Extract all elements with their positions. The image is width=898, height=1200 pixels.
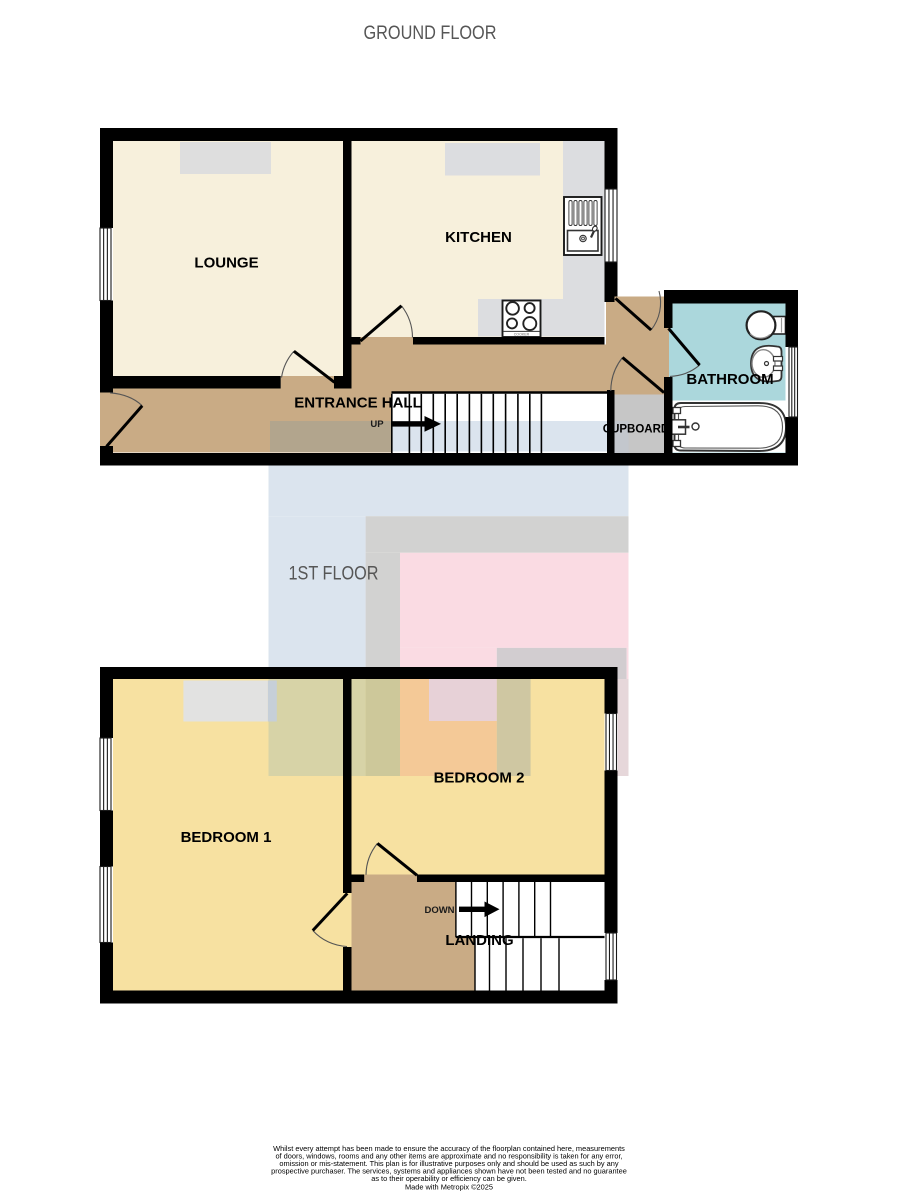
svg-text:BEDROOM 2: BEDROOM 2 xyxy=(434,770,525,787)
svg-text:1ST FLOOR: 1ST FLOOR xyxy=(289,564,379,585)
svg-text:GROUND FLOOR: GROUND FLOOR xyxy=(364,23,497,44)
svg-text:BATHROOM: BATHROOM xyxy=(686,371,773,388)
svg-text:UP: UP xyxy=(370,419,384,430)
svg-text:LOUNGE: LOUNGE xyxy=(194,255,258,272)
svg-text:BEDROOM 1: BEDROOM 1 xyxy=(181,829,272,846)
svg-text:COOKER: COOKER xyxy=(514,333,530,337)
svg-text:ENTRANCE HALL: ENTRANCE HALL xyxy=(294,395,422,412)
svg-text:LANDING: LANDING xyxy=(445,932,513,949)
svg-text:Made with Metropix ©2025: Made with Metropix ©2025 xyxy=(405,1183,493,1192)
svg-text:KITCHEN: KITCHEN xyxy=(445,229,512,246)
svg-text:DOWN: DOWN xyxy=(424,905,454,916)
